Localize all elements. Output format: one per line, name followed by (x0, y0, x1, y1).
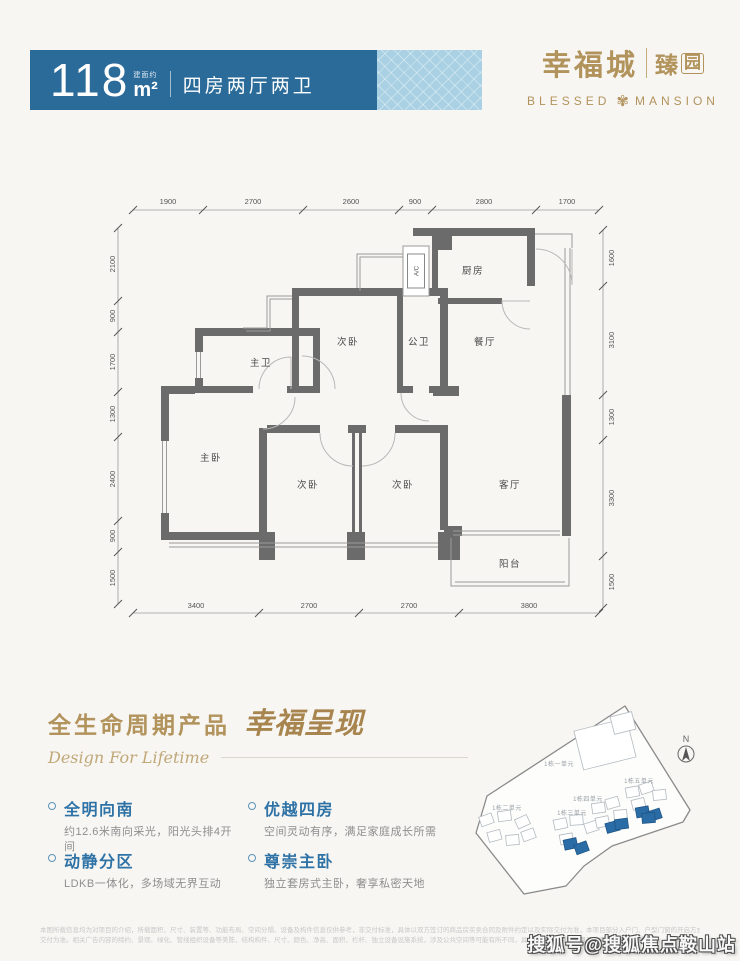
site-plan: 1栋一单元 1栋二单元 1栋三单元 1栋四单元 (462, 698, 740, 918)
logo-en-right: MANSION (635, 94, 719, 108)
north-compass-icon: N (678, 734, 694, 762)
brand-logo: 幸福城 臻 园 BLESSED ✾ MANSION (516, 42, 730, 110)
dim-left-5: 2400 (108, 471, 117, 488)
dim-right-5: 1500 (607, 574, 616, 591)
logo-sub-char1: 臻 (655, 46, 678, 80)
promo-subtitle: Design For Lifetime (48, 748, 209, 767)
logo-divider (646, 48, 647, 78)
feature-title: 动静分区 (64, 848, 221, 872)
dims-top: 1900 2700 2600 900 2800 1700 (129, 197, 603, 214)
promo-title-row: 全生命周期产品 幸福呈现 (48, 700, 468, 742)
feature-item-4: 尊崇主卧 独立套房式主卧，奢享私密天地 (248, 848, 443, 892)
feature-text: 优越四房 空间灵动有序，满足家庭成长所需 (264, 796, 437, 840)
floorplan: 1900 2700 2600 900 2800 1700 3400 2700 2… (95, 190, 635, 635)
site-label-unit2: 1栋二单元 (492, 804, 522, 812)
dim-top-1: 1900 (160, 197, 177, 206)
dim-left-4: 1300 (108, 406, 117, 423)
banner-divider (170, 71, 171, 97)
area-unit-block: 建面约 m² (133, 70, 157, 100)
room-label-bedroom-left: 次卧 (297, 479, 319, 491)
feature-item-3: 动静分区 LDKB一体化，多场域无界互动 (48, 848, 243, 892)
dim-top-5: 2800 (476, 197, 493, 206)
bullet-circle-icon (248, 854, 256, 862)
logo-en-row: BLESSED ✾ MANSION (516, 92, 730, 110)
dim-top-3: 2600 (343, 197, 360, 206)
dim-top-4: 900 (409, 197, 422, 206)
logo-subname: 臻 园 (655, 46, 704, 80)
promo-title-script: 幸福呈现 (244, 700, 364, 742)
north-label: N (683, 734, 690, 744)
site-plan-svg: 1栋一单元 1栋二单元 1栋三单元 1栋四单元 (462, 698, 740, 913)
dim-top-2: 2700 (245, 197, 262, 206)
room-label-master-bath: 主卫 (250, 357, 272, 369)
promo-title: 全生命周期产品 (48, 706, 230, 740)
room-label-kitchen: 厨房 (462, 265, 484, 277)
area-value: 118 (50, 57, 129, 103)
site-label-unit4: 1栋四单元 (573, 795, 603, 803)
feature-desc: 空间灵动有序，满足家庭成长所需 (264, 825, 437, 840)
room-label-master-bed: 主卧 (200, 452, 222, 464)
dim-left-3: 1700 (108, 354, 117, 371)
dim-bot-4: 3800 (521, 601, 538, 610)
room-label-balcony: 阳台 (499, 558, 521, 570)
dims-bottom: 3400 2700 2700 3800 (129, 601, 603, 617)
dim-right-1: 1600 (607, 250, 616, 267)
dims-left: 2100 900 1700 1300 2400 900 1500 (108, 224, 122, 608)
dim-bot-1: 3400 (188, 601, 205, 610)
site-label-unit3: 1栋三单元 (557, 809, 587, 817)
dim-right-4: 3300 (607, 490, 616, 507)
area-unit: m² (133, 80, 157, 100)
floorplan-walls (161, 228, 571, 560)
layout-label: 四房两厅两卫 (183, 71, 315, 98)
bullet-circle-icon (48, 854, 56, 862)
logo-name-cn: 幸福城 (542, 42, 638, 84)
feature-item-2: 优越四房 空间灵动有序，满足家庭成长所需 (248, 796, 443, 840)
floorplan-svg: 1900 2700 2600 900 2800 1700 3400 2700 2… (95, 190, 635, 635)
area-banner: 118 建面约 m² 四房两厅两卫 (30, 50, 482, 110)
dims-right: 1600 3100 1300 3300 1500 (599, 226, 616, 612)
dim-bot-3: 2700 (401, 601, 418, 610)
promo-subtitle-row: Design For Lifetime (48, 748, 468, 767)
feature-text: 动静分区 LDKB一体化，多场域无界互动 (64, 848, 221, 892)
bullet-circle-icon (48, 802, 56, 810)
feature-title: 尊崇主卧 (264, 848, 425, 872)
feature-title: 优越四房 (264, 796, 437, 820)
room-label-bedroom-right: 次卧 (392, 479, 414, 491)
banner-pattern-panel (377, 50, 482, 110)
room-label-public-bath: 公卫 (408, 337, 430, 348)
room-label-bedroom-top: 次卧 (337, 336, 359, 348)
promo-underline (221, 757, 468, 758)
promo-section: 全生命周期产品 幸福呈现 Design For Lifetime (48, 700, 468, 767)
feature-desc: LDKB一体化，多场域无界互动 (64, 877, 221, 892)
feature-item-1: 全明向南 约12.6米南向采光，阳光头排4开间 (48, 796, 243, 855)
dim-left-6: 900 (108, 530, 117, 543)
dim-left-1: 2100 (108, 256, 117, 273)
area-note: 建面约 (133, 70, 157, 80)
dim-left-7: 1500 (108, 570, 117, 587)
logo-sub-char2: 园 (681, 53, 704, 74)
poster: 118 建面约 m² 四房两厅两卫 幸福城 臻 园 BLESSED ✾ MANS… (0, 0, 740, 961)
dim-top-6: 1700 (559, 197, 576, 206)
logo-en-left: BLESSED (527, 94, 610, 108)
site-label-unit5: 1栋五单元 (624, 777, 654, 785)
feature-title: 全明向南 (64, 796, 243, 820)
dim-right-2: 3100 (607, 332, 616, 349)
room-label-ac: A/C (415, 265, 421, 276)
feature-text: 全明向南 约12.6米南向采光，阳光头排4开间 (64, 796, 243, 855)
feature-desc: 独立套房式主卧，奢享私密天地 (264, 877, 425, 892)
dim-left-2: 900 (108, 310, 117, 323)
dim-right-3: 1300 (607, 409, 616, 426)
dim-bot-2: 2700 (301, 601, 318, 610)
logo-cn-row: 幸福城 臻 园 (516, 42, 730, 84)
feature-text: 尊崇主卧 独立套房式主卧，奢享私密天地 (264, 848, 425, 892)
watermark: 搜狐号@搜狐焦点鞍山站 (527, 931, 736, 957)
bullet-circle-icon (248, 802, 256, 810)
room-label-living: 客厅 (499, 479, 521, 491)
site-label-unit1: 1栋一单元 (544, 760, 574, 768)
room-label-dining: 餐厅 (474, 336, 496, 348)
medallion-icon: ✾ (616, 92, 629, 110)
